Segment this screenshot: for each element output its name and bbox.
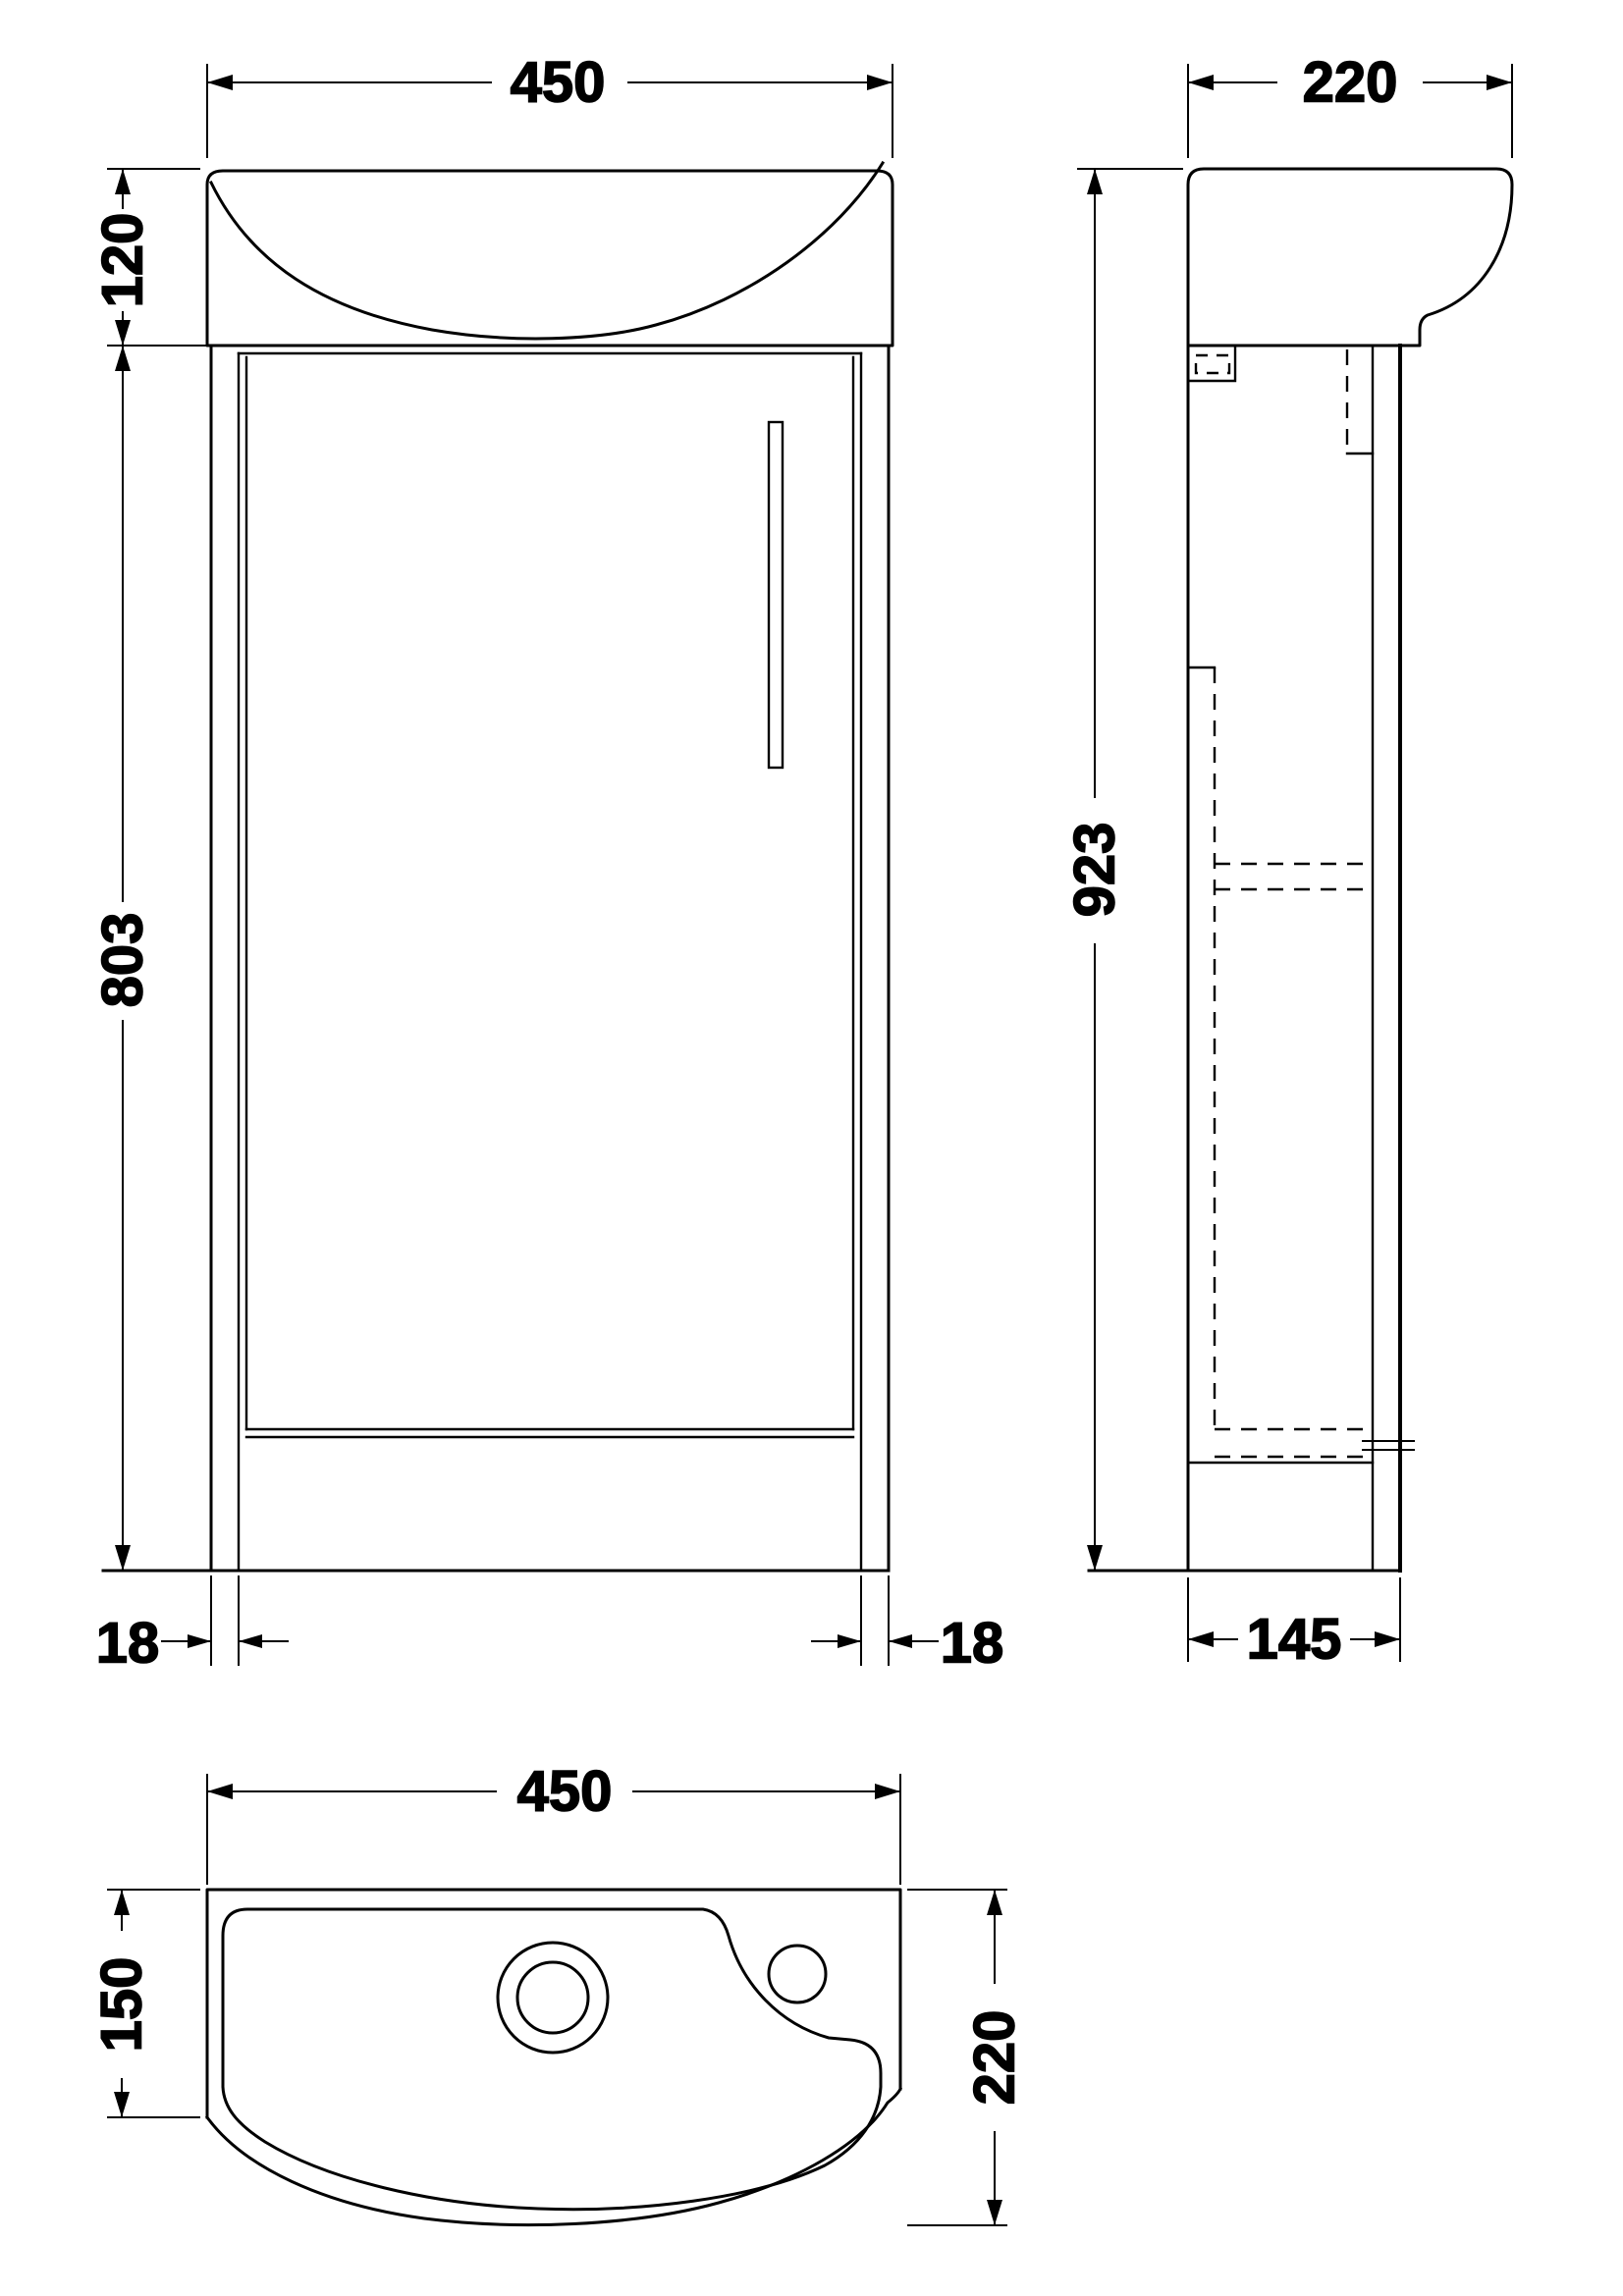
front-basin-outline [207,171,893,346]
front-door-handle [769,422,783,768]
technical-drawing: 450 120 803 18 [0,0,1623,2296]
front-dim-basin-height-label: 120 [91,213,155,308]
side-dim-base-depth-label: 145 [1247,1608,1342,1672]
drawing-sheet: 450 120 803 18 [0,0,1623,2296]
front-dim-right-panel-label: 18 [941,1612,1004,1676]
plan-dim-overall-depth: 220 [908,1890,1027,2225]
side-bracket-hidden-detail [1196,355,1229,373]
side-shelf-hidden [1215,864,1373,889]
plan-basin-bowl-outline [223,1909,881,2210]
side-dim-height-label: 923 [1063,823,1127,918]
plan-dim-overall-depth-label: 220 [963,2010,1027,2106]
front-dim-left-panel-label: 18 [96,1612,160,1676]
front-dim-width-label: 450 [511,51,606,115]
plan-basin-front-curve-outer [207,2089,900,2225]
plan-dim-width: 450 [207,1760,900,1885]
side-basin-outline [1188,169,1512,346]
plan-tap-hole [769,1946,826,2002]
side-bottom-panel-hidden [1215,1429,1373,1457]
front-dim-cabinet-height-label: 803 [91,913,155,1008]
front-dim-basin-height: 120 [91,169,206,346]
front-dim-width: 450 [207,51,893,158]
side-fixing-clip [1363,1441,1414,1450]
side-dim-base-depth: 145 [1188,1578,1400,1672]
front-view: 450 120 803 18 [91,51,1004,1676]
plan-view: 450 150 220 [90,1760,1027,2226]
front-dim-left-panel: 18 [96,1576,288,1676]
plan-dim-width-label: 450 [517,1760,613,1824]
front-dim-right-panel: 18 [812,1576,1003,1676]
plan-dim-left-depth-label: 150 [90,1957,154,2053]
plan-waste-hole-outer [498,1943,608,2053]
front-dim-cabinet-height: 803 [91,346,155,1571]
plan-dim-left-depth: 150 [90,1890,200,2117]
side-dim-depth-label: 220 [1303,51,1398,115]
plan-waste-hole-inner [517,1962,588,2033]
front-door-bottom-edge [246,1429,853,1437]
front-basin-bowl-curve [211,163,883,339]
side-dim-height: 923 [1063,169,1183,1571]
side-dim-depth: 220 [1188,51,1512,158]
side-view: 220 923 145 [1063,51,1513,1672]
